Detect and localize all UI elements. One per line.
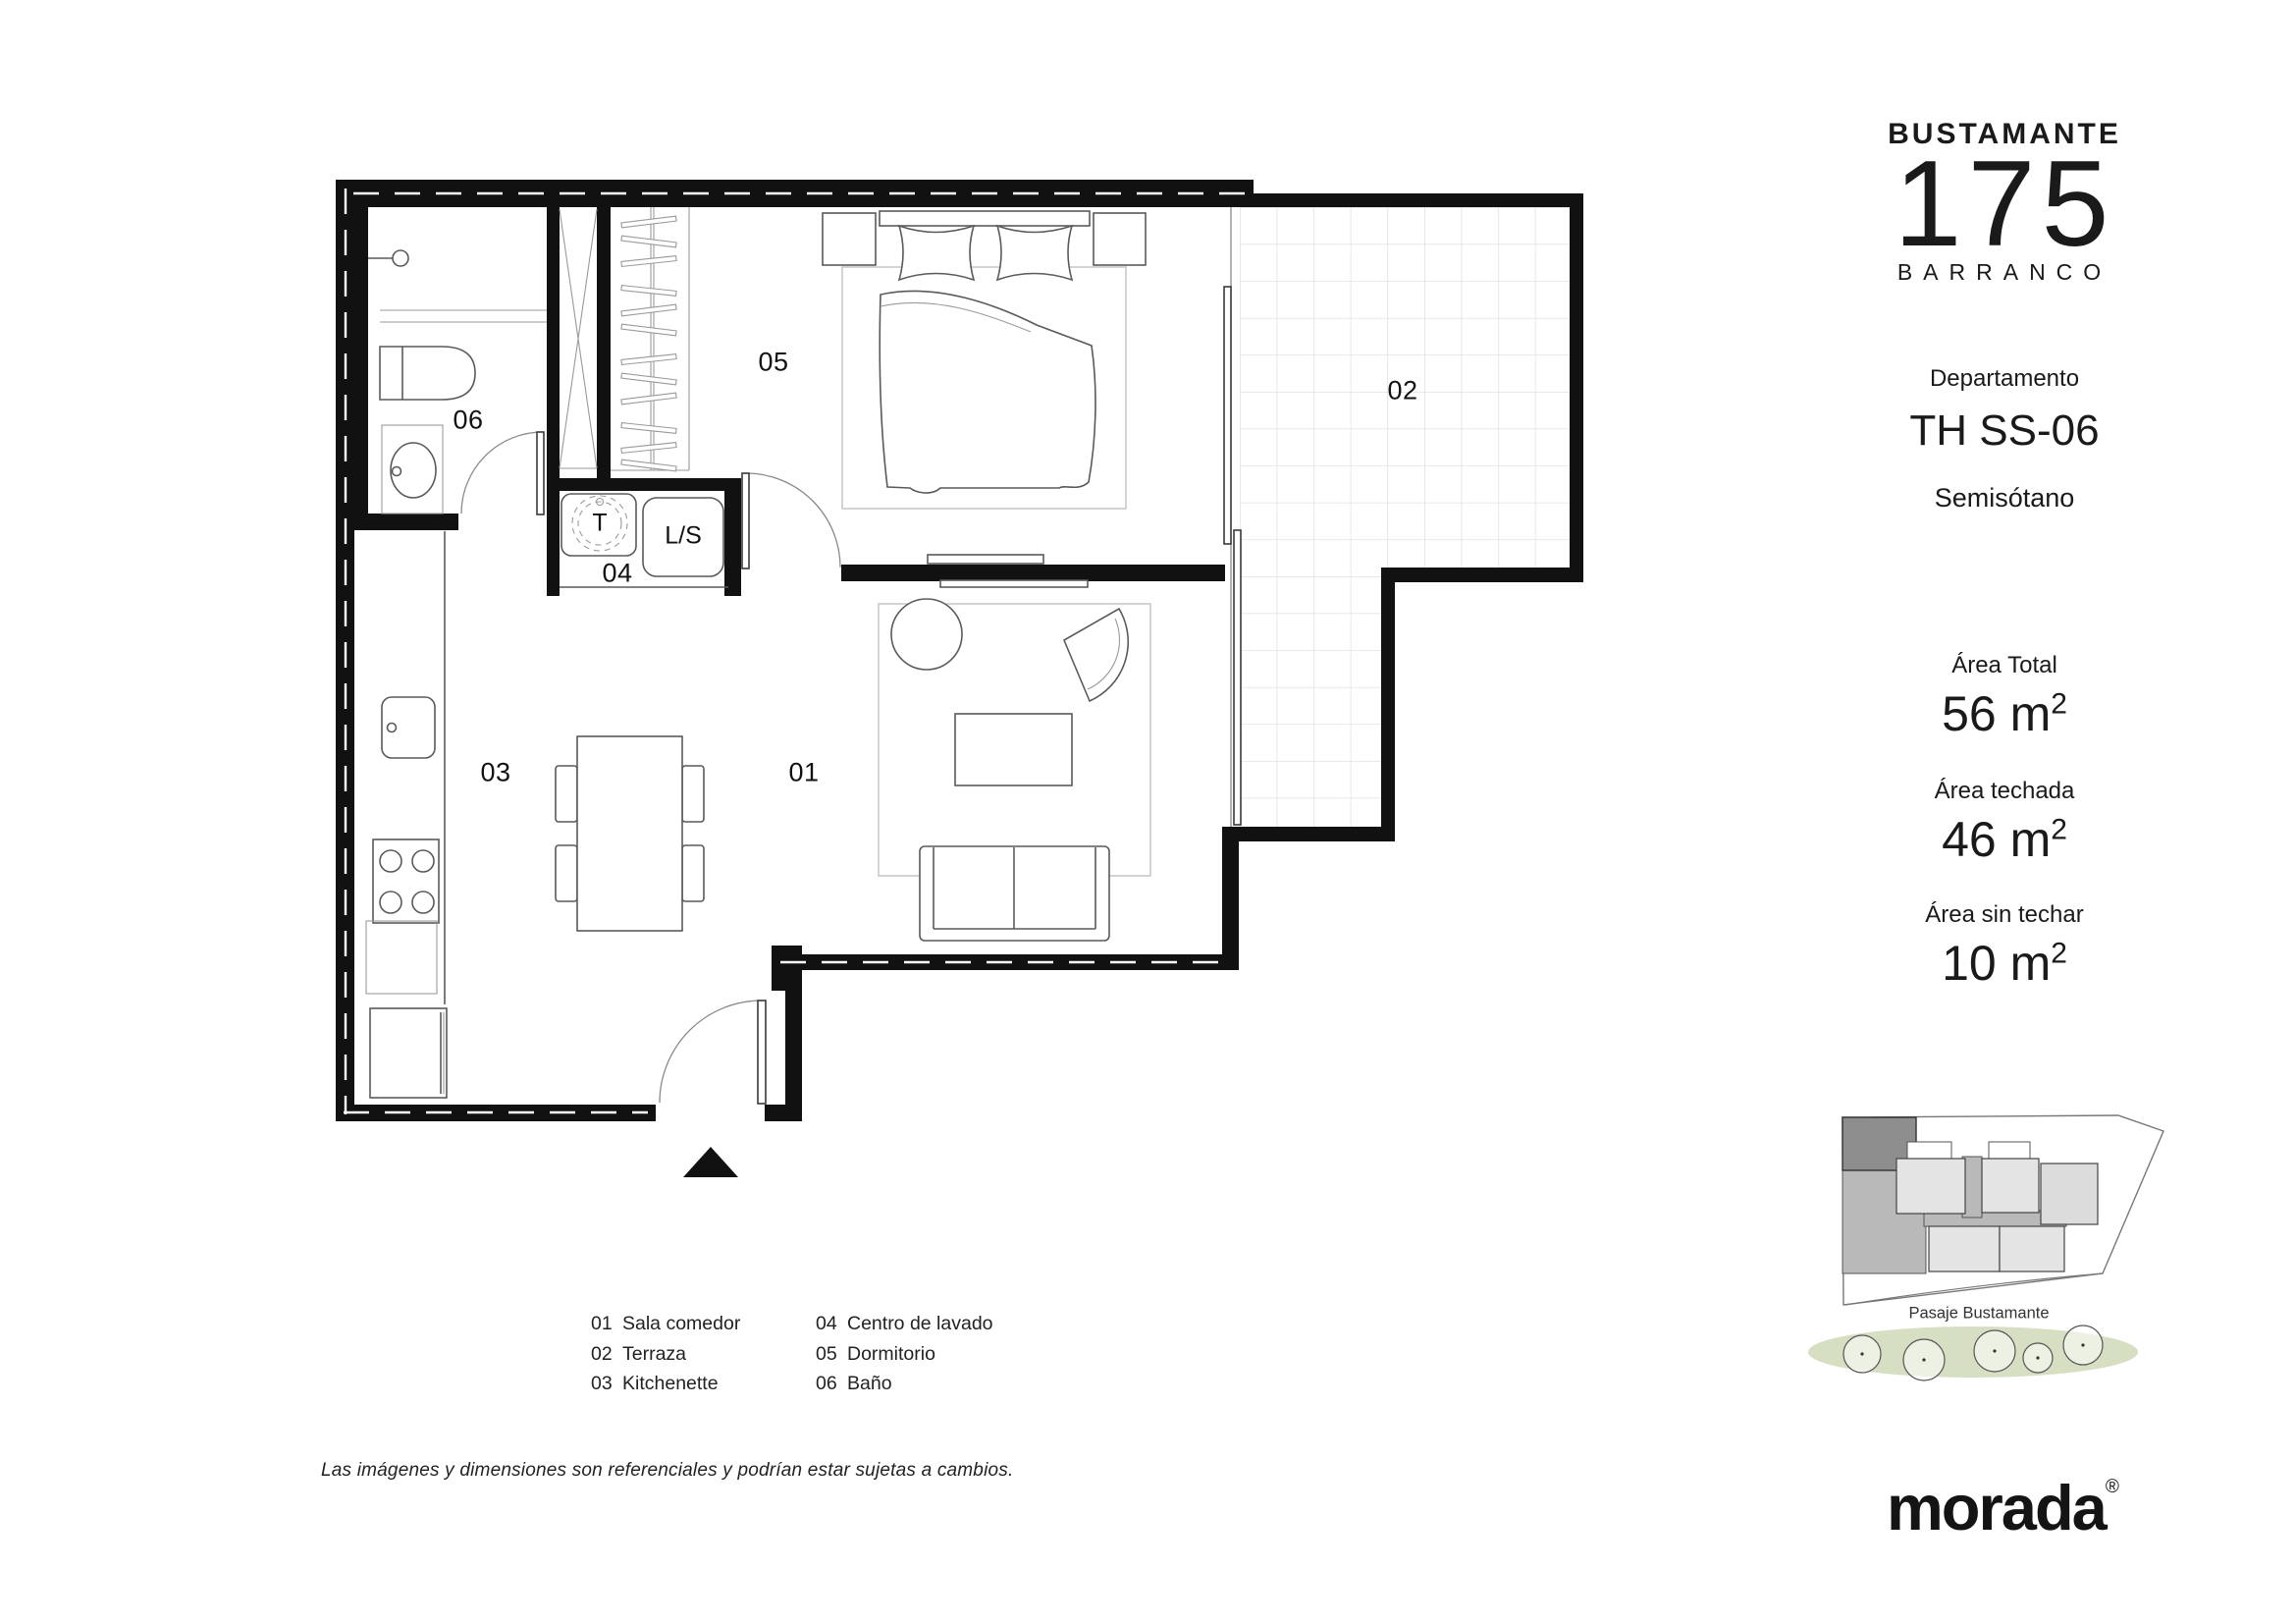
area-techada-label: Área techada — [1935, 778, 2075, 805]
pillow-left — [899, 226, 974, 280]
hanger-icons — [621, 216, 676, 471]
site-street-label: Pasaje Bustamante — [1908, 1305, 2049, 1324]
project-logo-district: BARRANCO — [1897, 259, 2111, 286]
fridge — [370, 1008, 447, 1098]
bedroom-door — [742, 473, 840, 568]
legend-item: 02Terraza — [591, 1339, 740, 1370]
legend-column-2: 04Centro de lavado 05Dormitorio 06Baño — [816, 1309, 993, 1399]
room-label-dormitorio: 05 — [758, 348, 788, 378]
toilet — [391, 443, 436, 498]
area-total-label: Área Total — [1951, 652, 2057, 679]
appliance-label-ls: L/S — [665, 522, 702, 551]
bathroom-fixtures — [368, 250, 547, 514]
closet-wardrobe — [611, 207, 689, 471]
nightstand-right — [1094, 213, 1146, 265]
area-total-value: 56 m2 — [1942, 685, 2067, 742]
developer-logo: morada® — [1887, 1471, 2119, 1544]
site-map — [1806, 1080, 2179, 1404]
area-sin-techar-value: 10 m2 — [1942, 935, 2067, 992]
living-furniture — [879, 599, 1150, 941]
kitchenette-fixtures — [366, 531, 447, 1098]
terrace-sliding-door — [1224, 207, 1241, 827]
room-label-lavado: 04 — [602, 559, 632, 589]
dining-table-set — [556, 736, 704, 931]
unit-level: Semisótano — [1935, 483, 2075, 514]
room-label-bano: 06 — [453, 406, 483, 436]
room-label-kitchenette: 03 — [480, 758, 510, 788]
bathroom-door — [461, 432, 544, 514]
unit-code: TH SS-06 — [1909, 406, 2099, 456]
area-techada-value: 46 m2 — [1942, 811, 2067, 868]
coffee-table — [955, 714, 1072, 785]
tv-living — [940, 580, 1088, 587]
vanity-counter — [380, 347, 475, 400]
appliance-label-therma: T — [592, 510, 607, 538]
project-logo-number: 175 — [1895, 143, 2115, 265]
entry-door — [660, 1001, 766, 1104]
room-label-terraza: 02 — [1387, 376, 1417, 406]
sofa — [920, 846, 1109, 941]
duct-shaft — [560, 209, 597, 468]
entry-arrow-icon — [683, 1147, 738, 1177]
legend-item: 04Centro de lavado — [816, 1309, 993, 1339]
bed-duvet — [880, 291, 1095, 493]
legend-item: 06Baño — [816, 1369, 993, 1399]
kitchen-sink — [382, 697, 435, 758]
pillow-right — [997, 226, 1072, 280]
legend-item: 05Dormitorio — [816, 1339, 993, 1370]
headboard — [880, 211, 1090, 226]
bedroom-furniture — [823, 211, 1146, 587]
round-side-table — [891, 599, 962, 670]
disclaimer-text: Las imágenes y dimensiones son referenci… — [321, 1460, 1013, 1482]
room-label-sala: 01 — [788, 758, 819, 788]
legend-column-1: 01Sala comedor 02Terraza 03Kitchenette — [591, 1309, 740, 1399]
lounge-chair — [1064, 609, 1128, 701]
terrace-tiles — [1240, 207, 1572, 827]
dining-table — [577, 736, 682, 931]
unit-type-label: Departamento — [1930, 365, 2079, 393]
area-sin-techar-label: Área sin techar — [1925, 901, 2083, 929]
kitchen-cabinet — [366, 921, 437, 994]
legend-item: 03Kitchenette — [591, 1369, 740, 1399]
nightstand-left — [823, 213, 876, 265]
tv-bedroom — [928, 555, 1043, 564]
laundry-center — [560, 494, 728, 587]
legend-item: 01Sala comedor — [591, 1309, 740, 1339]
